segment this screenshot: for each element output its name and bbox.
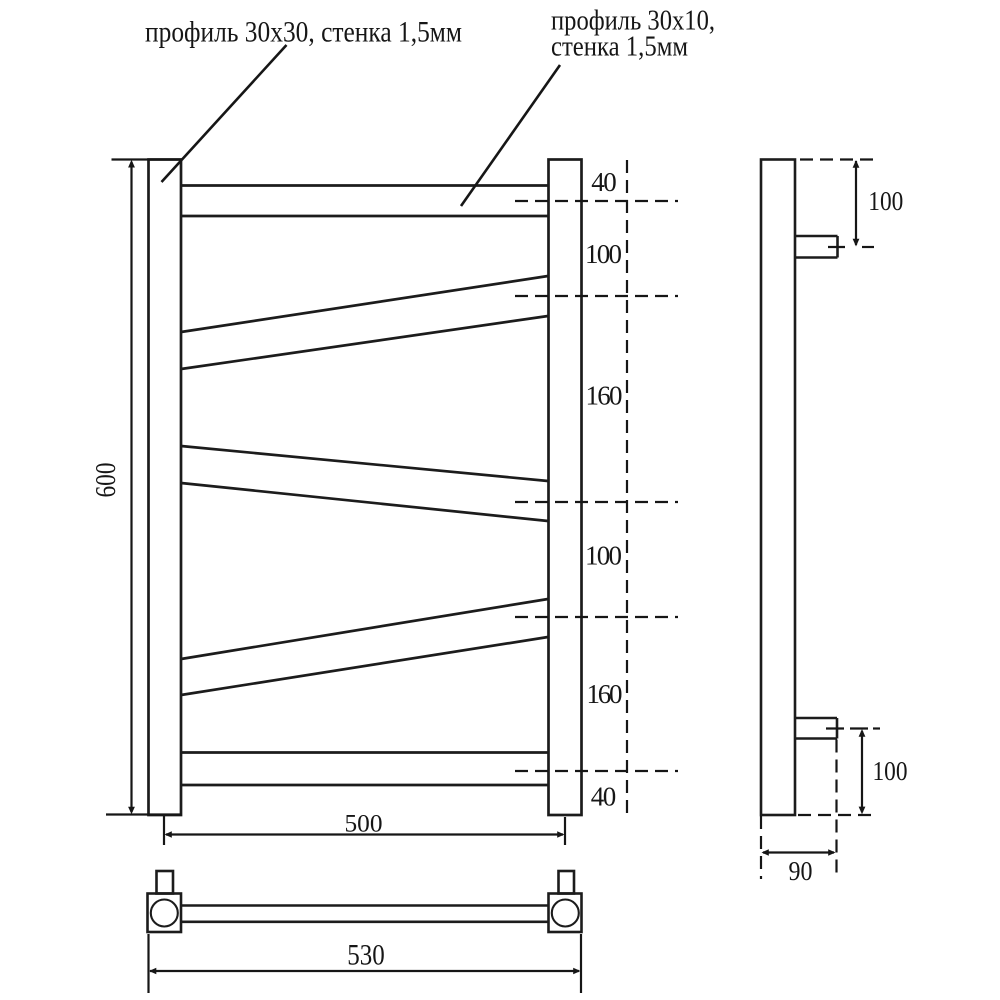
svg-text:стенка 1,5мм: стенка 1,5мм [551, 32, 688, 63]
svg-text:500: 500 [345, 809, 383, 838]
svg-text:530: 530 [347, 939, 385, 972]
svg-text:100: 100 [873, 756, 908, 786]
svg-text:40: 40 [591, 782, 617, 812]
svg-text:40: 40 [591, 167, 617, 197]
svg-text:100: 100 [868, 186, 903, 216]
svg-text:100: 100 [585, 541, 622, 571]
svg-text:160: 160 [587, 679, 623, 709]
svg-text:600: 600 [91, 463, 122, 498]
svg-text:100: 100 [585, 239, 622, 269]
svg-text:профиль 30х30, стенка 1,5мм: профиль 30х30, стенка 1,5мм [145, 16, 462, 49]
svg-text:90: 90 [789, 856, 813, 886]
svg-text:160: 160 [586, 381, 623, 411]
